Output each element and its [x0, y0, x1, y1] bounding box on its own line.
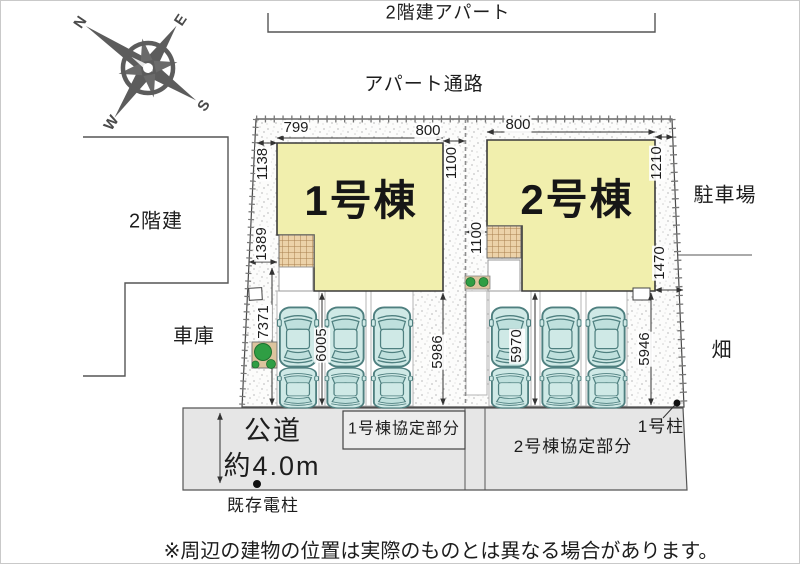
dim-b1-top-left: 799	[282, 120, 309, 136]
car-icon	[540, 368, 581, 408]
building-2-label: 2号棟	[520, 178, 633, 222]
terrace-2	[487, 226, 521, 258]
garage-label: 車庫	[173, 327, 215, 348]
dim-b2-top-left: 800	[504, 117, 531, 133]
disclaimer-note: ※周辺の建物の位置は実際のものとは異なる場合があります。	[164, 542, 719, 563]
existing-pole-dot	[253, 480, 261, 488]
dim-center-south: 1100	[469, 221, 485, 255]
car-icon	[586, 368, 627, 408]
car-icon	[586, 307, 627, 366]
step-building-2	[633, 288, 650, 300]
tree-planter	[252, 342, 277, 369]
car-icon	[371, 368, 412, 408]
terrace-1	[279, 235, 314, 267]
field-label: 畑	[712, 341, 733, 362]
dim-east-north: 1210	[649, 145, 665, 180]
boundary-marker	[249, 288, 263, 301]
agreement-area-1-label: 1号棟協定部分	[348, 422, 460, 439]
tree-icon	[255, 344, 272, 361]
car-icon	[325, 307, 366, 366]
dim-p2-east: 5946	[637, 331, 653, 366]
entrance-2	[488, 260, 520, 291]
road-width-label: 約4.0m	[223, 452, 320, 480]
shrub-icon	[466, 278, 475, 287]
passage-label: アパート通路	[364, 75, 484, 95]
dim-p2-inner: 5970	[509, 328, 525, 363]
car-icon	[489, 368, 530, 408]
building-1-label: 1号棟	[304, 179, 417, 223]
existing-pole-label: 既存電柱	[227, 497, 299, 515]
car-icon	[540, 307, 581, 366]
compass-n: N	[70, 13, 90, 31]
dim-b1-top-right: 800	[414, 123, 441, 139]
neighbor-building-label: 2階建	[129, 212, 183, 233]
dim-p1-inner: 6005	[314, 327, 330, 362]
car-icon	[325, 368, 366, 408]
dim-west-1: 1138	[255, 147, 271, 181]
site-plan: N E S W	[0, 0, 800, 564]
car-icon	[277, 368, 318, 408]
dim-p1-east: 5986	[430, 334, 446, 369]
dim-east-south: 1470	[652, 245, 668, 280]
entrance-1	[279, 267, 313, 291]
shrub-icon	[479, 278, 488, 287]
compass-s: S	[194, 97, 214, 115]
road-name-label: 公道	[244, 417, 302, 445]
dim-west-3: 7371	[256, 304, 272, 339]
parking-lot-label: 駐車場	[694, 186, 757, 207]
car-icon	[371, 307, 412, 366]
agreement-area-2-label: 2号棟協定部分	[514, 438, 632, 456]
compass-icon: N E S W	[33, 0, 247, 171]
pole-no1-label: 1号柱	[638, 418, 684, 436]
compass-w: W	[100, 112, 122, 134]
shrub-strip	[465, 276, 490, 289]
apartment-label: 2階建アパート	[386, 4, 511, 23]
dim-west-2: 1389	[254, 226, 270, 261]
dim-center-north: 1100	[444, 146, 460, 180]
compass-e: E	[171, 11, 191, 29]
